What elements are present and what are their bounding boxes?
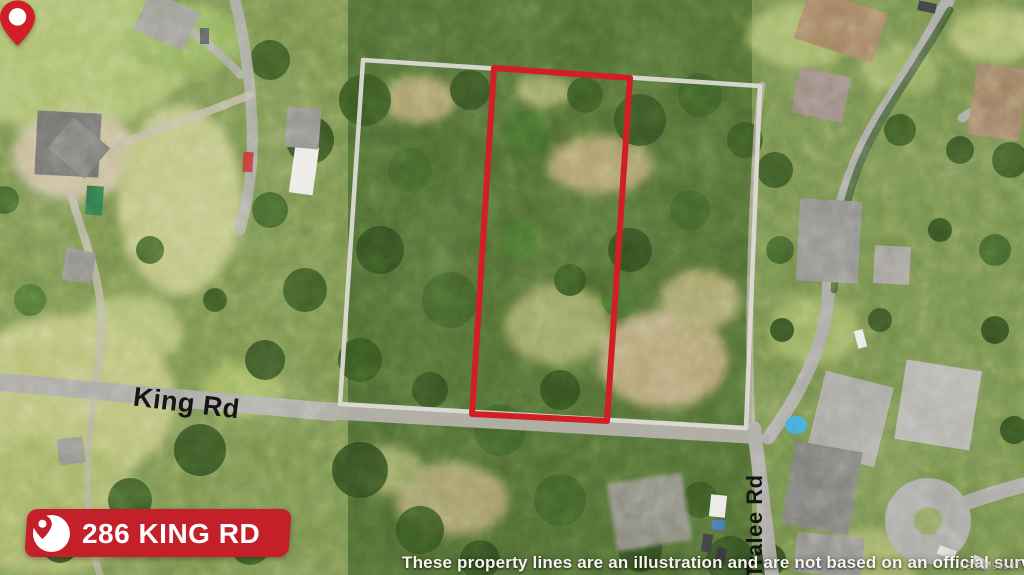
address-badge-label: 286 KING RD [82,517,260,549]
fine-texture [0,0,1024,575]
aerial-property-photo: 286 KING RD King Rd Tralee Rd These prop… [0,0,1024,575]
watermark-text: LS®1099587 [959,561,1021,572]
map-pin-icon [33,515,52,539]
aerial-scene [0,0,1024,575]
location-pin-icon [0,0,35,46]
disclaimer-text: These property lines are an illustration… [402,553,1017,573]
badge-pin-circle [33,515,70,552]
address-badge: 286 KING RD [24,509,292,557]
